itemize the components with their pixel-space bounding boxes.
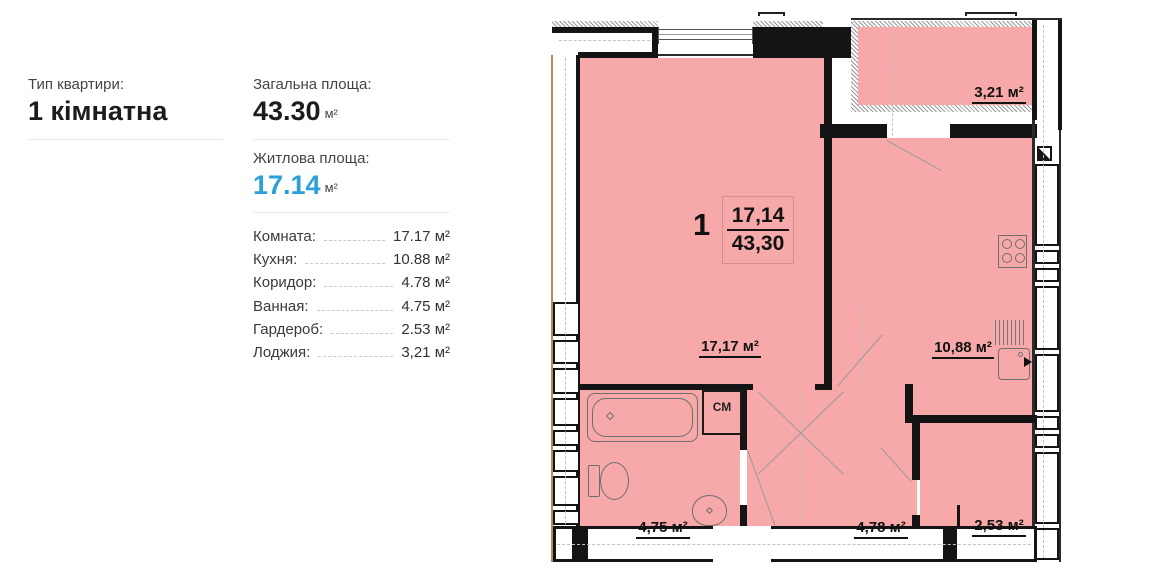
apartment-type-label: Тип квартири: bbox=[28, 76, 124, 93]
leader-line bbox=[324, 240, 385, 241]
living-area-unit: м² bbox=[325, 180, 338, 195]
shaft-block bbox=[1035, 416, 1059, 430]
floor-plan: СМ 1 17,14 43,30 17,17 м² 10,88 м² 3,21 … bbox=[545, 0, 1166, 584]
leader-line bbox=[318, 356, 393, 357]
total-area-value: 43.30м² bbox=[253, 96, 338, 127]
kitchen-sink-tap bbox=[1018, 352, 1023, 357]
room-value: 17.17 м² bbox=[393, 228, 450, 245]
living-area-fraction: 17,14 bbox=[727, 204, 790, 231]
list-item: Коридор:4.78 м² bbox=[253, 274, 450, 297]
window-block bbox=[553, 368, 580, 394]
label-room-area: 17,17 м² bbox=[690, 338, 770, 355]
outer-right-line bbox=[1059, 130, 1061, 562]
room-wardrobe bbox=[920, 423, 1032, 526]
stove-burner bbox=[1015, 239, 1025, 249]
axis-line bbox=[863, 300, 864, 382]
window-block bbox=[553, 510, 580, 525]
label-bathroom-area: 4,75 м² bbox=[623, 519, 703, 536]
stove-burner bbox=[1002, 239, 1012, 249]
leader-line bbox=[305, 263, 385, 264]
apartment-type-value: 1 кімнатна bbox=[28, 96, 167, 127]
list-item: Комната:17.17 м² bbox=[253, 228, 450, 251]
shaft-block bbox=[1035, 268, 1059, 282]
balcony-rail-mark bbox=[965, 12, 1017, 16]
stove-burner bbox=[1002, 253, 1012, 263]
shaft-block bbox=[1035, 250, 1059, 264]
living-area-value: 17.14м² bbox=[253, 170, 338, 201]
window-block bbox=[553, 340, 580, 364]
room-label: Гардероб: bbox=[253, 321, 323, 338]
list-item: Кухня:10.88 м² bbox=[253, 251, 450, 274]
hatch-strip-loggia-bottom bbox=[851, 105, 1032, 112]
room-label: Кухня: bbox=[253, 251, 297, 268]
stove-burner bbox=[1015, 253, 1025, 263]
wall-room-kitchen bbox=[824, 27, 832, 390]
axis-line bbox=[892, 20, 893, 136]
leader-line bbox=[317, 310, 394, 311]
washing-machine-label: СМ bbox=[713, 400, 732, 414]
window-block bbox=[553, 302, 580, 336]
apartment-number: 1 bbox=[693, 207, 710, 243]
room-value: 3,21 м² bbox=[401, 344, 450, 361]
leader-line bbox=[331, 333, 393, 334]
axis-line bbox=[557, 544, 1031, 545]
window-block bbox=[553, 476, 580, 506]
list-item: Лоджия:3,21 м² bbox=[253, 344, 450, 367]
wall-kitchen-corridor bbox=[905, 384, 913, 423]
window-line bbox=[658, 29, 753, 30]
label-wardrobe-area: 2,53 м² bbox=[959, 517, 1039, 534]
window-block bbox=[553, 430, 580, 446]
living-area-label: Житлова площа: bbox=[253, 150, 370, 167]
room-value: 10.88 м² bbox=[393, 251, 450, 268]
room-label: Лоджия: bbox=[253, 344, 310, 361]
divider-right-1 bbox=[253, 139, 449, 140]
room-area-list: Комната:17.17 м² Кухня:10.88 м² Коридор:… bbox=[253, 228, 450, 367]
wall-bath-corridor-lower bbox=[740, 505, 747, 526]
room-value: 2.53 м² bbox=[401, 321, 450, 338]
list-item: Гардероб:2.53 м² bbox=[253, 321, 450, 344]
axis-line bbox=[801, 392, 802, 520]
label-kitchen-area: 10,88 м² bbox=[923, 339, 1003, 356]
wall-room-top bbox=[578, 52, 658, 58]
list-item: Ванная:4.75 м² bbox=[253, 298, 450, 321]
window-line bbox=[658, 39, 753, 40]
wall-outer-right bbox=[1058, 20, 1062, 130]
hatch-strip-loggia-left bbox=[851, 21, 858, 112]
hatch-strip-loggia-top bbox=[851, 21, 1032, 27]
window-block bbox=[553, 450, 580, 472]
axis-line bbox=[559, 40, 650, 41]
wall-room-bottom-stub bbox=[815, 384, 832, 390]
wall-corridor-wardrobe-upper bbox=[912, 423, 920, 480]
shaft-block bbox=[1035, 354, 1059, 412]
toilet-bowl bbox=[600, 462, 629, 500]
shaft-block bbox=[1035, 434, 1059, 448]
divider-right-2 bbox=[253, 212, 449, 213]
shaft-block bbox=[1035, 286, 1059, 350]
wall-top-outer bbox=[552, 27, 658, 33]
window-tick bbox=[658, 27, 659, 44]
loggia-top-line bbox=[851, 18, 1062, 20]
wall-loggia-right bbox=[1032, 20, 1037, 120]
toilet-cistern bbox=[588, 465, 600, 497]
window-line bbox=[658, 34, 753, 35]
room-value: 4.78 м² bbox=[401, 274, 450, 291]
direction-arrow-icon bbox=[1024, 357, 1032, 367]
wall-wardrobe-top bbox=[913, 415, 1037, 423]
living-area-number: 17.14 bbox=[253, 170, 321, 200]
balcony-rail-mark bbox=[758, 12, 785, 16]
page: { "panel": { "type_label": "Тип квартири… bbox=[0, 0, 1166, 584]
shaft-block bbox=[1035, 164, 1059, 246]
shaft-block bbox=[1035, 452, 1059, 524]
window-block bbox=[553, 398, 580, 426]
total-area-label: Загальна площа: bbox=[253, 76, 371, 93]
window-tick bbox=[752, 27, 753, 44]
room-value: 4.75 м² bbox=[401, 298, 450, 315]
vent-shaft-icon bbox=[1037, 146, 1052, 161]
wall-kitchen-top-left bbox=[820, 124, 887, 138]
leader-line bbox=[324, 286, 393, 287]
washing-machine-box: СМ bbox=[702, 390, 742, 435]
window-inner-edge bbox=[658, 54, 753, 56]
divider-left bbox=[28, 139, 223, 140]
axis-line bbox=[1043, 25, 1044, 558]
wall-top-right-mass bbox=[753, 27, 851, 58]
room-label: Коридор: bbox=[253, 274, 316, 291]
room-label: Ванная: bbox=[253, 298, 309, 315]
total-area-fraction: 43,30 bbox=[732, 231, 785, 256]
area-fraction-box: 17,14 43,30 bbox=[722, 196, 794, 264]
total-area-number: 43.30 bbox=[253, 96, 321, 126]
label-loggia-area: 3,21 м² bbox=[962, 84, 1036, 101]
total-area-unit: м² bbox=[325, 106, 338, 121]
room-label: Комната: bbox=[253, 228, 316, 245]
axis-line bbox=[565, 58, 566, 524]
wall-kitchen-top-right bbox=[950, 124, 1037, 138]
label-corridor-area: 4,78 м² bbox=[841, 519, 921, 536]
